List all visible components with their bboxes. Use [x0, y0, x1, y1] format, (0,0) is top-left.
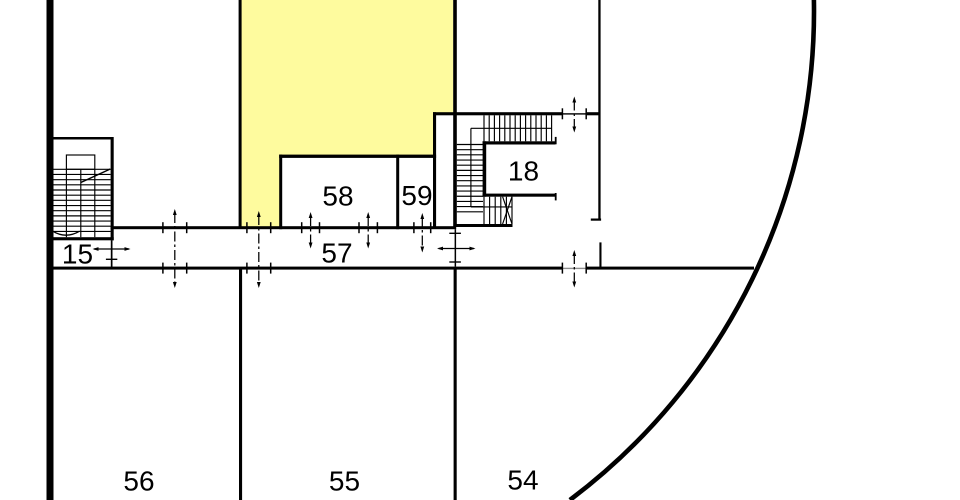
- svg-text:55: 55: [329, 466, 360, 497]
- svg-text:57: 57: [321, 238, 352, 269]
- svg-text:54: 54: [507, 465, 538, 496]
- svg-text:58: 58: [322, 181, 353, 212]
- svg-text:59: 59: [401, 180, 432, 211]
- svg-text:15: 15: [62, 238, 93, 269]
- svg-text:56: 56: [123, 466, 154, 497]
- svg-text:18: 18: [508, 156, 539, 187]
